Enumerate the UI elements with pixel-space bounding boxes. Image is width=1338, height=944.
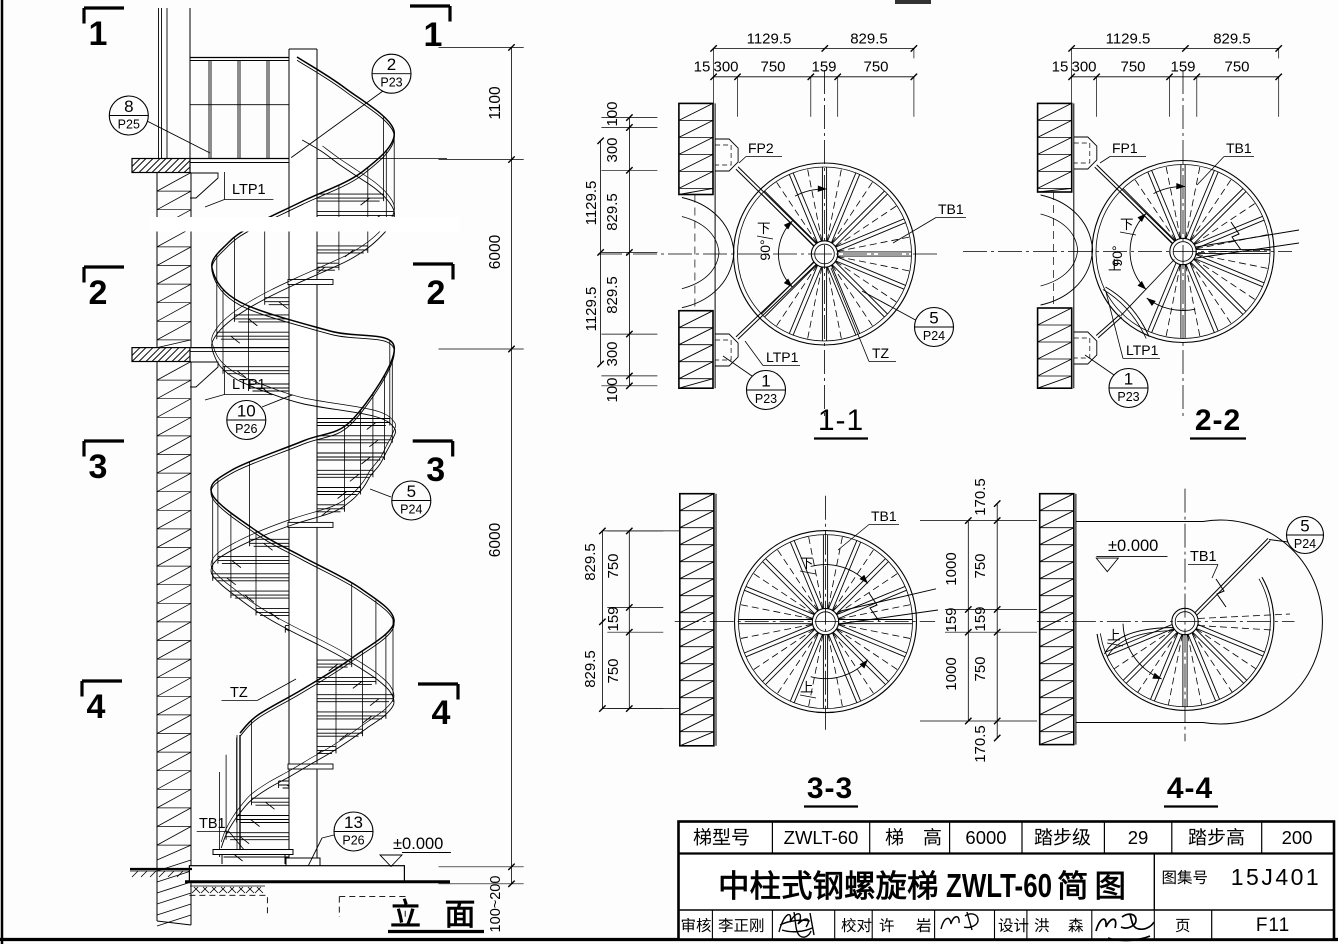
svg-text:300: 300 [604, 137, 621, 162]
svg-text:159: 159 [943, 607, 960, 632]
svg-text:6000: 6000 [487, 522, 504, 557]
svg-text:P23: P23 [755, 392, 777, 406]
svg-text:1-1: 1-1 [818, 404, 864, 437]
svg-text:159: 159 [811, 59, 836, 76]
svg-text:±0.000: ±0.000 [393, 835, 443, 853]
svg-text:750: 750 [1120, 59, 1145, 76]
svg-text:90°: 90° [757, 239, 773, 260]
svg-text:29: 29 [1128, 827, 1149, 848]
svg-text:829.5: 829.5 [582, 650, 599, 688]
svg-text:F11: F11 [1256, 915, 1290, 936]
svg-text:±0.000: ±0.000 [1108, 537, 1158, 555]
svg-text:ZWLT-60: ZWLT-60 [946, 867, 1052, 904]
svg-text:300: 300 [604, 341, 621, 366]
svg-text:5: 5 [1300, 517, 1309, 536]
svg-text:100: 100 [604, 377, 621, 402]
svg-text:LTP1: LTP1 [1126, 342, 1159, 358]
svg-text:100: 100 [604, 101, 621, 126]
svg-text:15: 15 [1052, 59, 1069, 76]
svg-text:300: 300 [713, 59, 738, 76]
svg-text:FP1: FP1 [1112, 140, 1138, 156]
svg-text:LTP1: LTP1 [232, 182, 266, 198]
svg-text:90°: 90° [1109, 245, 1125, 266]
svg-text:P24: P24 [923, 329, 945, 343]
svg-text:FP2: FP2 [748, 140, 774, 156]
svg-text:5: 5 [929, 309, 938, 328]
svg-text:200: 200 [1282, 827, 1313, 848]
svg-text:1100: 1100 [487, 86, 504, 120]
svg-text:4-4: 4-4 [1167, 772, 1213, 805]
svg-text:1: 1 [1124, 370, 1133, 389]
svg-text:5: 5 [407, 482, 416, 501]
svg-text:TZ: TZ [230, 685, 248, 701]
svg-text:P26: P26 [235, 422, 257, 436]
svg-text:P25: P25 [118, 118, 140, 132]
svg-text:15J401: 15J401 [1231, 864, 1321, 890]
svg-text:829.5: 829.5 [604, 193, 621, 231]
svg-text:P26: P26 [342, 834, 364, 848]
svg-text:TZ: TZ [872, 345, 890, 361]
svg-text:170.5: 170.5 [972, 478, 989, 516]
svg-text:2: 2 [427, 274, 446, 312]
svg-text:1129.5: 1129.5 [1106, 30, 1151, 47]
svg-text:6000: 6000 [965, 827, 1006, 848]
svg-text:750: 750 [972, 656, 989, 681]
svg-text:4: 4 [432, 694, 451, 732]
svg-text:750: 750 [605, 658, 622, 683]
svg-text:13: 13 [344, 813, 363, 832]
svg-text:3: 3 [426, 451, 445, 489]
svg-text:829.5: 829.5 [582, 543, 599, 581]
svg-text:829.5: 829.5 [604, 276, 621, 314]
svg-text:TB1: TB1 [938, 201, 964, 217]
svg-text:1000: 1000 [943, 657, 960, 690]
svg-text:1: 1 [89, 15, 108, 53]
svg-text:1: 1 [424, 16, 443, 54]
svg-text:P24: P24 [400, 503, 422, 517]
svg-text:P23: P23 [380, 76, 402, 90]
svg-text:100~200: 100~200 [488, 876, 504, 933]
svg-text:1129.5: 1129.5 [747, 30, 792, 47]
svg-text:3-3: 3-3 [807, 772, 853, 805]
svg-text:LTP1: LTP1 [232, 377, 266, 393]
svg-text:TB1: TB1 [1190, 549, 1217, 565]
svg-text:750: 750 [972, 553, 989, 578]
svg-text:4: 4 [87, 688, 106, 726]
svg-text:15: 15 [694, 59, 711, 76]
svg-text:159: 159 [1170, 59, 1195, 76]
svg-text:TB1: TB1 [871, 508, 897, 524]
svg-text:3: 3 [89, 448, 108, 486]
svg-text:8: 8 [124, 97, 133, 116]
svg-text:2: 2 [89, 274, 108, 312]
svg-text:ZWLT-60: ZWLT-60 [784, 827, 859, 848]
svg-text:170.5: 170.5 [972, 725, 989, 763]
svg-text:2: 2 [387, 55, 396, 74]
svg-text:TB1: TB1 [199, 816, 226, 832]
svg-text:1: 1 [761, 372, 770, 391]
svg-text:TB1: TB1 [1226, 140, 1252, 156]
svg-text:750: 750 [760, 59, 785, 76]
svg-text:829.5: 829.5 [850, 30, 888, 47]
svg-text:829.5: 829.5 [1213, 30, 1251, 47]
svg-text:159: 159 [605, 606, 622, 631]
svg-text:300: 300 [1071, 59, 1096, 76]
svg-text:750: 750 [863, 59, 888, 76]
svg-text:P24: P24 [1294, 537, 1316, 551]
svg-text:750: 750 [1224, 59, 1249, 76]
svg-text:159: 159 [972, 606, 989, 631]
svg-text:1000: 1000 [943, 552, 960, 585]
svg-text:1129.5: 1129.5 [583, 287, 600, 332]
svg-text:2-2: 2-2 [1195, 404, 1241, 437]
svg-text:750: 750 [605, 553, 622, 578]
svg-text:P23: P23 [1117, 390, 1139, 404]
svg-text:1129.5: 1129.5 [583, 181, 600, 226]
svg-text:LTP1: LTP1 [766, 349, 799, 365]
svg-text:10: 10 [237, 402, 256, 421]
svg-text:6000: 6000 [487, 234, 504, 269]
